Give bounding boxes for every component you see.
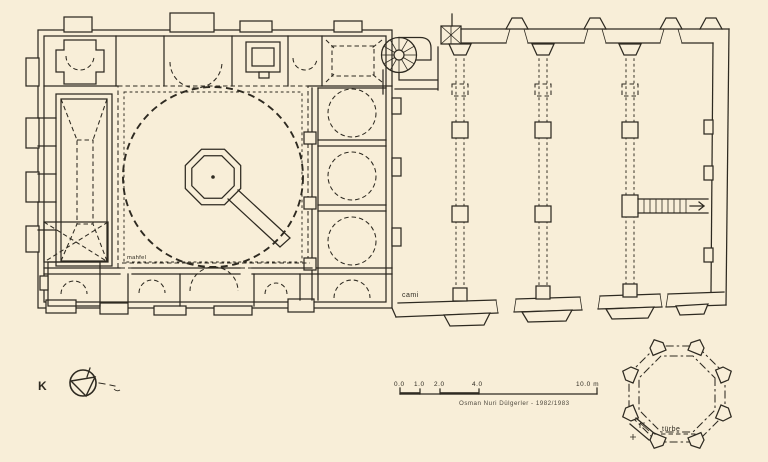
scale-tick-0: 0.0 — [394, 381, 405, 388]
engaged-pier — [532, 44, 554, 55]
pier-row — [449, 44, 471, 301]
dome-arc — [170, 62, 222, 88]
mosque-label: cami — [402, 292, 419, 299]
stairs — [622, 195, 708, 217]
dome-arc — [334, 280, 370, 298]
north-arrow-icon — [70, 368, 120, 396]
pier-row — [619, 44, 641, 297]
wall-nub — [704, 120, 713, 134]
wall-bay — [26, 172, 39, 202]
corner-room — [56, 40, 104, 84]
wall-nub — [704, 166, 713, 180]
pier-row — [532, 44, 554, 299]
dome-arc — [265, 283, 287, 294]
surveyor-attribution: Osman Nuri Dülgerler - 1982/1983 — [459, 400, 570, 407]
stair-treads — [644, 199, 686, 213]
south-rooms — [40, 222, 312, 306]
corner-vault-mark — [441, 14, 461, 44]
wall-nub — [40, 276, 48, 290]
kiosk-inner — [252, 48, 274, 66]
pier — [535, 122, 551, 138]
kiosk-nub — [259, 72, 269, 78]
portal-buttress — [700, 18, 722, 29]
hall-label: mahfel — [127, 255, 146, 261]
wall-bay — [100, 303, 128, 314]
portal-buttress — [444, 313, 490, 326]
portal-buttress — [584, 18, 606, 29]
portal-buttress — [506, 18, 528, 29]
central-domed-hall — [118, 86, 308, 268]
portal-buttress — [522, 310, 572, 322]
portal-buttress — [660, 18, 682, 29]
wall-bay — [288, 299, 314, 312]
pier — [622, 122, 638, 138]
scale-bar: 0.0 1.0 2.0 4.0 10.0 m Osman Nuri Dülger… — [394, 381, 599, 407]
vault-crown — [77, 140, 93, 224]
wall-nub — [392, 228, 401, 246]
mosque-plan: cami — [392, 18, 729, 326]
east-wall — [704, 29, 729, 305]
dome-arc — [293, 58, 317, 70]
radial-corridor — [228, 190, 290, 247]
wall-nub — [392, 98, 401, 114]
pier — [452, 206, 468, 222]
wall-bay — [26, 226, 39, 252]
engaged-pier — [453, 288, 467, 301]
wall-bay — [170, 13, 214, 32]
engaged-pier — [449, 44, 471, 55]
scale-end-label: 10.0 m — [576, 381, 599, 388]
wall-nub — [704, 248, 713, 262]
scale-segment — [400, 392, 420, 394]
dome-arc — [139, 280, 165, 293]
north-compass: K — [38, 368, 120, 396]
wall-bay — [26, 118, 39, 148]
tomb-label: türbe — [662, 426, 680, 433]
tomb-plan: türbe — [620, 337, 734, 451]
dome-arc — [190, 267, 238, 291]
center-dot — [211, 175, 215, 179]
dome-circle-cell — [328, 152, 376, 200]
north-rooms — [44, 36, 392, 88]
bath-complex-plan: mahfel — [26, 13, 401, 315]
west-hall — [38, 94, 112, 266]
cross-vault-room — [332, 46, 374, 76]
wall-bay — [240, 21, 272, 32]
scale-tick-4: 4.0 — [472, 381, 483, 388]
dome-circle-cell — [328, 89, 376, 137]
south-wall — [392, 292, 726, 326]
pier-dashed — [452, 84, 468, 96]
pier — [452, 122, 468, 138]
wall-bay — [214, 306, 252, 315]
tomb-inner-wall-dashed — [639, 356, 715, 432]
dome-circle-cell — [328, 217, 376, 265]
engaged-pier — [623, 284, 637, 297]
wall-bay — [26, 58, 39, 86]
kiosk-room — [246, 42, 280, 72]
wall-bay — [334, 21, 362, 32]
engaged-pier — [619, 44, 641, 55]
pier — [304, 132, 316, 144]
pier-dashed — [535, 84, 551, 96]
pier — [304, 197, 316, 209]
north-letter: K — [38, 379, 47, 393]
north-wall — [461, 18, 729, 43]
dome-arc — [66, 56, 94, 70]
portal-buttress — [606, 307, 654, 319]
engaged-pier — [536, 286, 550, 299]
scale-tick-2: 2.0 — [434, 381, 445, 388]
wall-bay — [154, 306, 186, 315]
portal-buttress — [676, 304, 708, 315]
scale-segment — [440, 392, 479, 394]
scale-tick-1: 1.0 — [414, 381, 425, 388]
floor-plan-drawing: mahfel — [0, 0, 768, 462]
wall-bay — [64, 17, 92, 32]
pier — [535, 206, 551, 222]
stair-direction-arrow-icon — [690, 202, 704, 210]
stair-pier — [622, 195, 638, 217]
wall-nub — [392, 158, 401, 176]
minaret-spiral-stair — [382, 14, 462, 94]
pier-dashed — [622, 84, 638, 96]
